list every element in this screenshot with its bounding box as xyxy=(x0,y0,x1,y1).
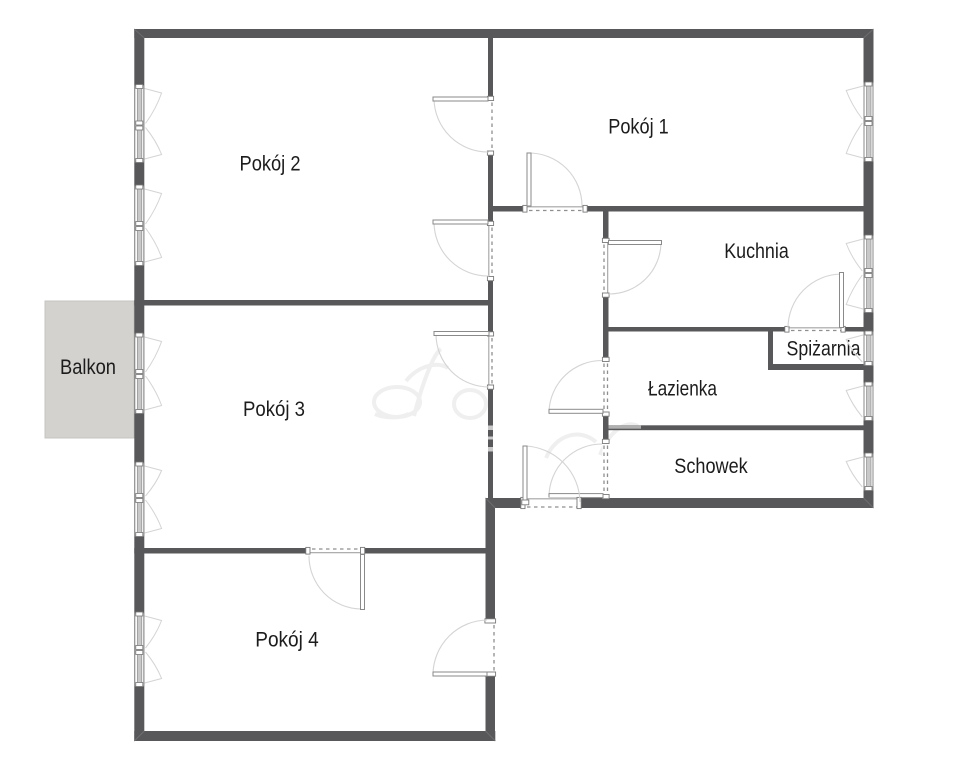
svg-text:Pokój 2: Pokój 2 xyxy=(240,153,301,176)
svg-text:Schowek: Schowek xyxy=(674,455,748,478)
svg-text:Balkon: Balkon xyxy=(60,356,116,379)
svg-text:Pokój 4: Pokój 4 xyxy=(255,629,319,652)
svg-text:Spiżarnia: Spiżarnia xyxy=(787,338,861,361)
svg-text:Pokój 1: Pokój 1 xyxy=(608,116,669,139)
svg-text:Łazienka: Łazienka xyxy=(648,377,717,400)
svg-text:Pokój 3: Pokój 3 xyxy=(243,398,305,421)
svg-text:Kuchnia: Kuchnia xyxy=(724,240,789,263)
